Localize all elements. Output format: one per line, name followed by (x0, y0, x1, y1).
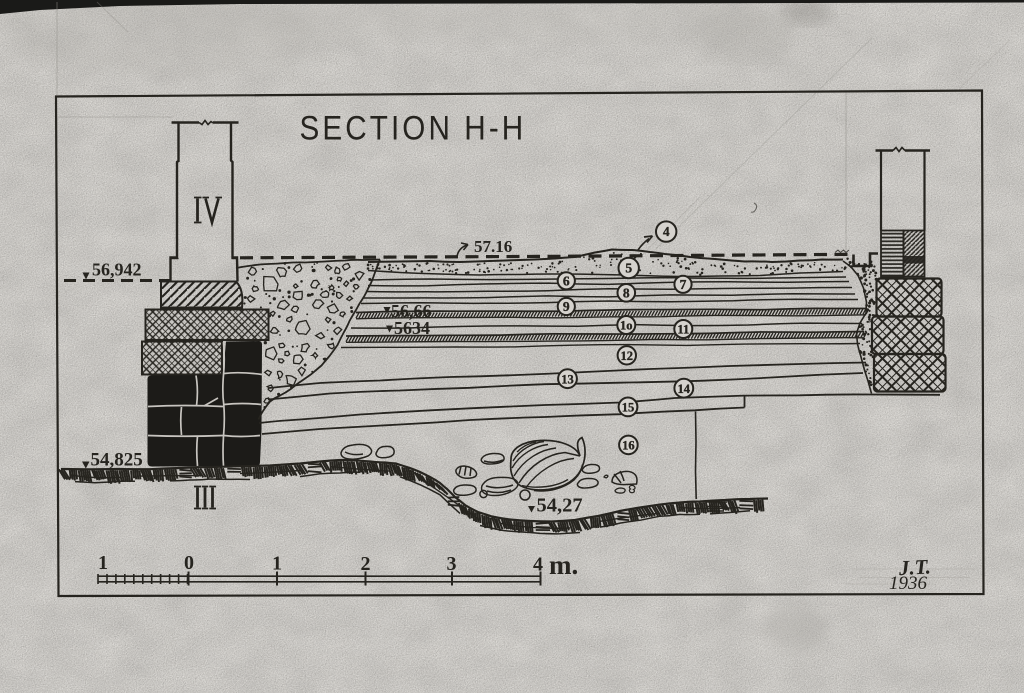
svg-text:2: 2 (361, 553, 371, 575)
svg-text:7: 7 (680, 277, 687, 292)
svg-text:9: 9 (563, 299, 570, 314)
svg-text:6: 6 (563, 273, 570, 288)
svg-text:56,942: 56,942 (92, 260, 142, 280)
svg-text:8: 8 (623, 285, 630, 300)
svg-text:5: 5 (625, 261, 632, 276)
svg-text:54,27: 54,27 (537, 495, 583, 517)
svg-text:m.: m. (549, 550, 578, 580)
svg-text:SECTION H-H: SECTION H-H (300, 108, 527, 147)
svg-text:14: 14 (678, 382, 691, 396)
svg-text:1: 1 (98, 552, 108, 574)
svg-text:11: 11 (677, 323, 689, 337)
svg-text:4: 4 (533, 554, 543, 576)
svg-text:1o: 1o (620, 319, 633, 333)
svg-text:5634: 5634 (394, 318, 430, 338)
svg-text:57.16: 57.16 (474, 237, 512, 256)
svg-text:1: 1 (272, 553, 282, 575)
svg-text:4: 4 (663, 224, 670, 239)
svg-text:1936: 1936 (889, 573, 928, 594)
svg-text:0: 0 (184, 552, 194, 574)
svg-text:3: 3 (447, 553, 457, 575)
svg-text:13: 13 (561, 372, 574, 386)
svg-text:15: 15 (622, 401, 635, 415)
svg-text:12: 12 (621, 349, 634, 363)
svg-text:16: 16 (622, 439, 635, 453)
svg-text:54,825: 54,825 (91, 450, 143, 471)
